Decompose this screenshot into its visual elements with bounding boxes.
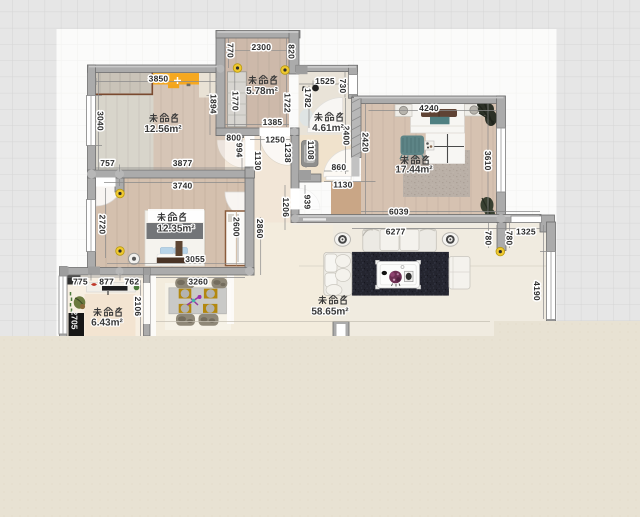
svg-text:780: 780: [484, 231, 494, 246]
svg-text:4.61m²: 4.61m²: [312, 123, 344, 134]
svg-text:800: 800: [226, 132, 241, 142]
svg-text:6277: 6277: [386, 227, 406, 237]
svg-text:1770: 1770: [231, 91, 241, 111]
svg-text:775: 775: [73, 276, 88, 286]
svg-text:762: 762: [125, 276, 140, 286]
svg-text:3040: 3040: [96, 111, 106, 131]
svg-text:6.43m²: 6.43m²: [91, 318, 123, 329]
svg-text:3260: 3260: [188, 277, 208, 287]
svg-text:877: 877: [99, 276, 114, 286]
svg-text:3055: 3055: [185, 254, 205, 264]
svg-text:770: 770: [226, 43, 236, 58]
svg-text:1722: 1722: [283, 93, 293, 113]
svg-text:3850: 3850: [149, 74, 169, 84]
svg-text:4190: 4190: [532, 281, 542, 301]
svg-text:1130: 1130: [253, 151, 263, 170]
svg-text:730: 730: [338, 79, 348, 94]
svg-text:860: 860: [332, 162, 347, 172]
svg-text:1108: 1108: [306, 141, 316, 160]
svg-text:2420: 2420: [361, 132, 371, 152]
svg-text:1782: 1782: [303, 88, 313, 108]
svg-text:1525: 1525: [315, 76, 335, 86]
svg-text:1894: 1894: [209, 94, 219, 114]
svg-text:1250: 1250: [265, 135, 285, 145]
svg-text:12.56m²: 12.56m²: [144, 124, 182, 135]
svg-text:1385: 1385: [263, 117, 283, 127]
svg-text:5.78m²: 5.78m²: [246, 86, 278, 97]
svg-text:780: 780: [505, 231, 515, 246]
svg-text:3740: 3740: [173, 181, 193, 191]
svg-text:939: 939: [302, 195, 312, 210]
svg-text:4240: 4240: [419, 103, 439, 113]
svg-text:3877: 3877: [173, 158, 193, 168]
svg-text:757: 757: [100, 158, 115, 168]
svg-text:2720: 2720: [97, 215, 107, 235]
svg-text:820: 820: [287, 44, 297, 59]
svg-text:2860: 2860: [255, 219, 265, 239]
svg-text:1238: 1238: [283, 143, 293, 163]
svg-text:2705: 2705: [70, 311, 80, 330]
svg-text:1130: 1130: [333, 180, 352, 190]
svg-text:12.35m²: 12.35m²: [157, 224, 195, 235]
svg-text:58.65m²: 58.65m²: [311, 307, 349, 318]
svg-text:3610: 3610: [483, 151, 493, 171]
svg-text:994: 994: [234, 143, 244, 158]
svg-text:2600: 2600: [232, 217, 242, 237]
svg-text:1325: 1325: [516, 226, 536, 236]
svg-text:17.44m²: 17.44m²: [395, 165, 433, 176]
svg-text:1206: 1206: [281, 197, 291, 217]
svg-text:2106: 2106: [133, 297, 143, 317]
svg-text:2300: 2300: [251, 42, 271, 52]
svg-text:6039: 6039: [389, 206, 409, 216]
